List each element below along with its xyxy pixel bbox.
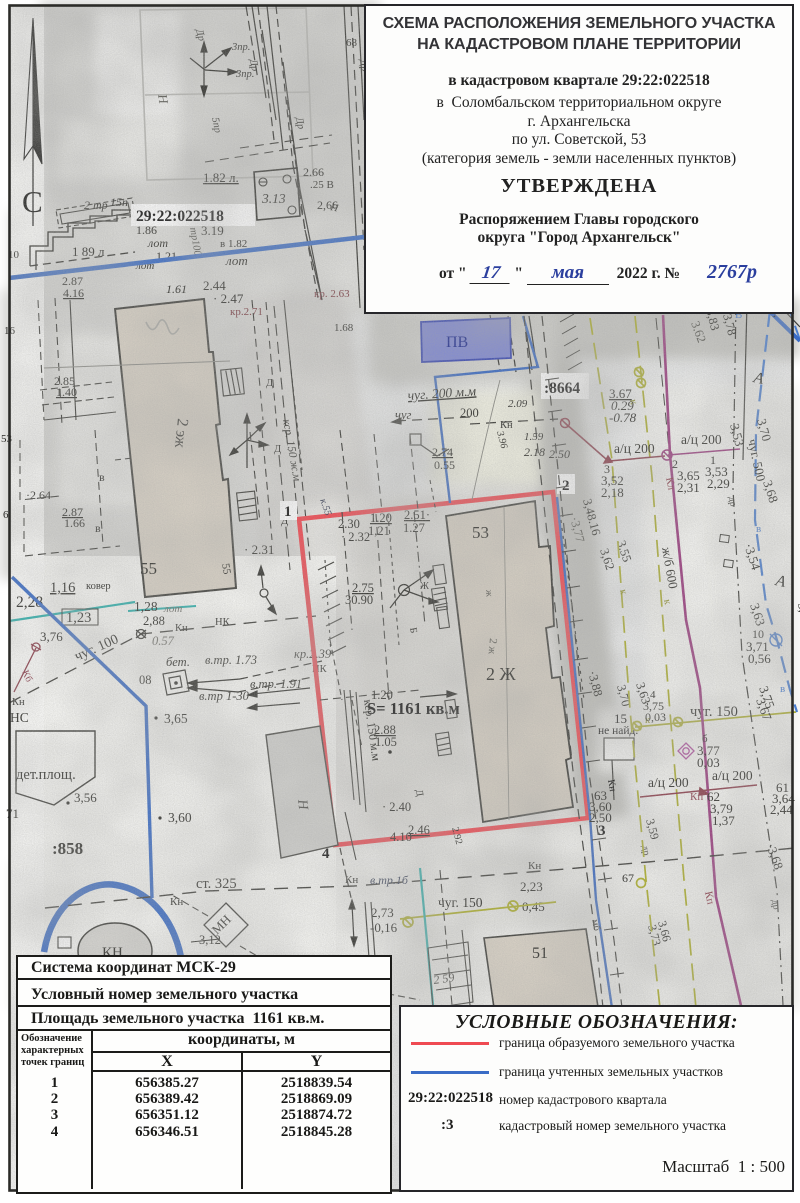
svg-text:6: 6 bbox=[3, 509, 9, 521]
